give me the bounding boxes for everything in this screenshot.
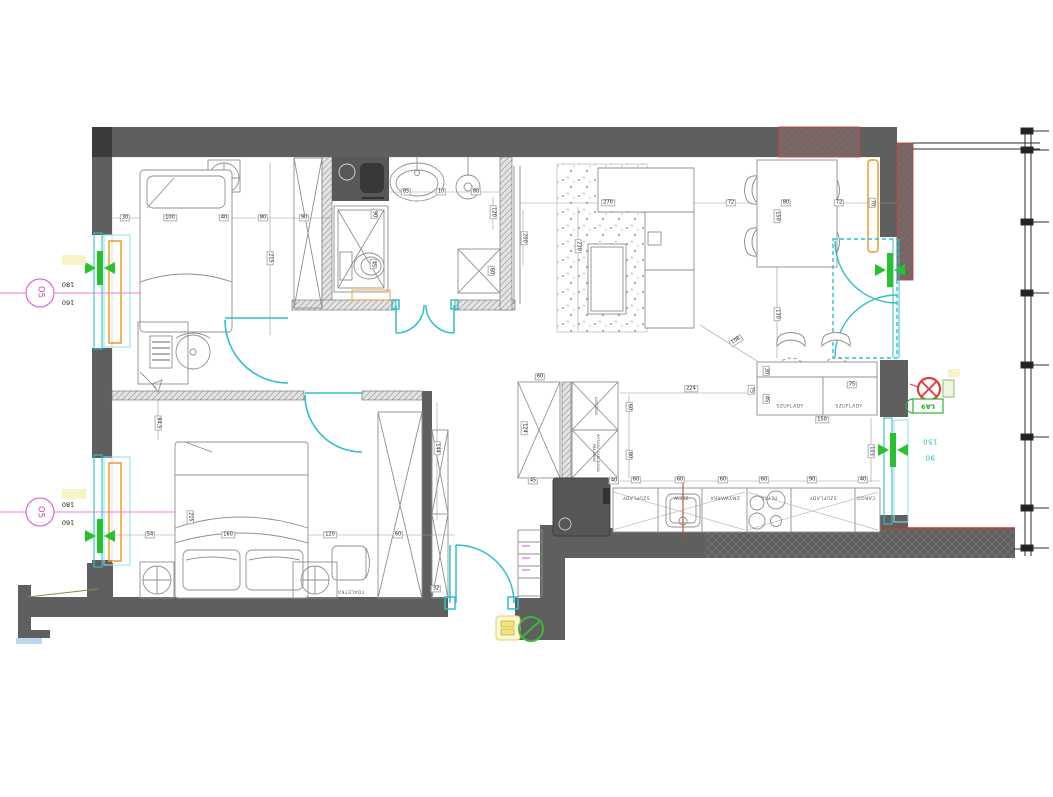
desk-chair xyxy=(176,333,210,369)
yellow-note-icon xyxy=(496,616,520,640)
opening-marker-icon xyxy=(878,433,908,467)
window-tag-circle xyxy=(26,498,54,526)
closet xyxy=(294,158,322,308)
coffee-table xyxy=(588,244,626,314)
vanity-stool xyxy=(332,546,370,580)
wardrobe xyxy=(378,412,422,598)
fridge-appliance xyxy=(553,478,610,536)
wall-panel xyxy=(514,166,520,304)
bedroom2-furniture xyxy=(140,412,448,598)
opening-marker-icon xyxy=(85,251,115,285)
balcony-railing xyxy=(913,128,1049,556)
crossed-circle-icon xyxy=(910,378,940,400)
floor-plan-drawing xyxy=(0,0,1053,797)
dining-table xyxy=(757,160,837,267)
double-bed xyxy=(175,442,308,598)
bedroom1-door xyxy=(225,318,288,383)
hall-closet xyxy=(432,430,448,598)
kitchen xyxy=(518,333,880,541)
small-green-box xyxy=(943,380,954,397)
bathroom-door xyxy=(392,300,458,333)
radiator xyxy=(868,160,878,252)
entry-cabinet xyxy=(518,530,542,596)
bath-mat xyxy=(352,290,390,300)
vanity-unit xyxy=(332,157,389,201)
window-tag-circle xyxy=(26,279,54,307)
electrical-symbols xyxy=(906,378,954,413)
radiator xyxy=(109,241,121,343)
bathroom-fixtures xyxy=(332,157,520,304)
floor-plan-canvas: O5180160O518016015090LA93010040809021585… xyxy=(0,0,1053,797)
tall-cabinet-column xyxy=(572,382,618,478)
kitchen-counter xyxy=(613,478,880,540)
bedroom1-furniture xyxy=(138,158,322,392)
hall-wardrobe xyxy=(518,382,560,478)
shower xyxy=(334,206,388,292)
wall-bottom-right-hatch xyxy=(705,528,1015,558)
floor-lamp xyxy=(140,372,162,392)
blue-tick xyxy=(16,638,42,644)
single-bed xyxy=(140,170,232,332)
bedroom2-door xyxy=(305,393,362,452)
bathtub xyxy=(390,157,444,201)
nightstand xyxy=(140,562,174,598)
entrance-door xyxy=(445,545,518,609)
opening-marker-icon xyxy=(85,519,115,553)
washbasin xyxy=(456,157,480,199)
wall-cap xyxy=(92,127,112,157)
washing-machine xyxy=(458,249,500,293)
wall-lamp-tag xyxy=(906,399,943,413)
toilet xyxy=(340,252,384,280)
island xyxy=(757,333,877,416)
living-room-furniture xyxy=(557,160,878,332)
